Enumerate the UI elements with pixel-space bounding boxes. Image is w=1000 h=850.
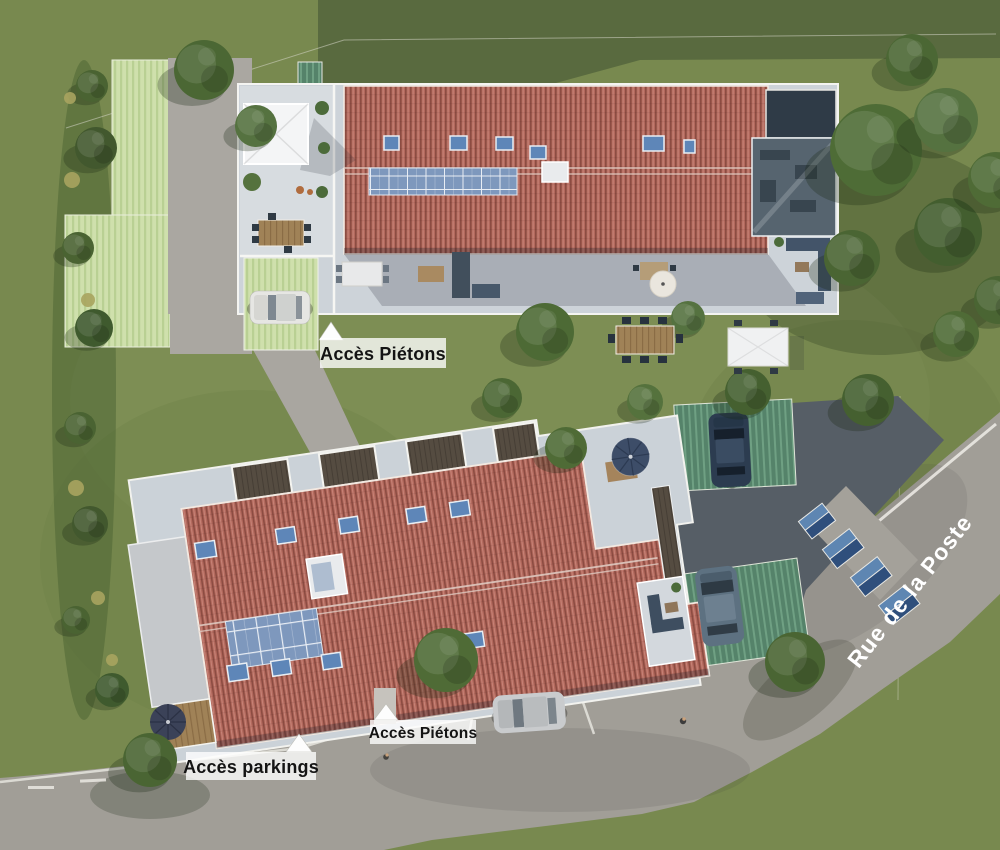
garden-table <box>616 326 674 354</box>
roof-hatch <box>542 162 568 182</box>
roof-shadow <box>344 254 806 306</box>
car-white <box>247 291 313 324</box>
car-silver <box>490 691 568 734</box>
car-dark-blue <box>708 412 752 490</box>
label-text: Accès Piétons <box>369 725 478 742</box>
site-plan-canvas: Accès Piétons Accès parkings Accès Piéto… <box>0 0 1000 850</box>
building-north <box>238 84 838 314</box>
label-text: Accès Piétons <box>320 344 446 364</box>
solar-array-north <box>369 168 517 195</box>
glass-roof-section <box>766 90 836 138</box>
aerial-site-plan: Accès Piétons Accès parkings Accès Piéto… <box>0 0 1000 850</box>
label-text: Accès parkings <box>183 757 319 777</box>
